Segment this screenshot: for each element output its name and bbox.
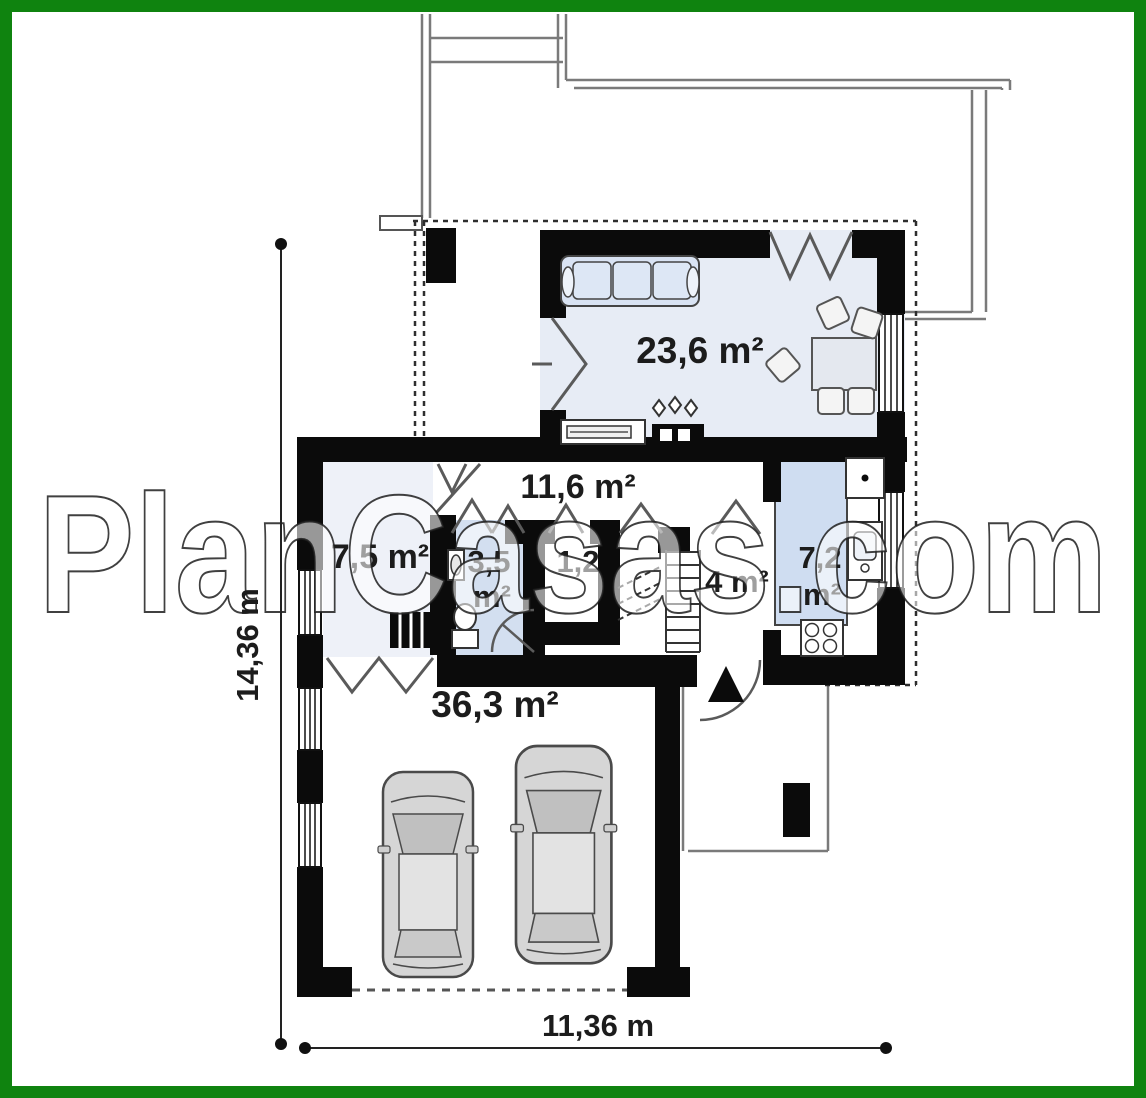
car-right xyxy=(511,746,617,963)
dimension-horizontal-label: 11,36 m xyxy=(542,1008,654,1043)
car-left xyxy=(378,772,478,977)
floor-plan-page: 23,6 m² 11,6 m² 7,5 m² 3,5 m² 1,2 4 m² 7… xyxy=(0,0,1146,1098)
window-right-living xyxy=(879,314,903,412)
floor-plan-drawing: 23,6 m² 11,6 m² 7,5 m² 3,5 m² 1,2 4 m² 7… xyxy=(0,0,1146,1098)
tv-bench xyxy=(561,420,645,444)
dimension-vertical-label: 14,36 m xyxy=(230,588,265,702)
garage-label: 36,3 m² xyxy=(431,684,559,725)
porch-pillar xyxy=(783,783,810,837)
window-left-3 xyxy=(299,803,321,867)
watermark-text: PlanCasas.com xyxy=(38,460,1108,648)
window-left-2 xyxy=(299,688,321,750)
sofa xyxy=(561,256,699,306)
living-room-label: 23,6 m² xyxy=(636,330,764,371)
